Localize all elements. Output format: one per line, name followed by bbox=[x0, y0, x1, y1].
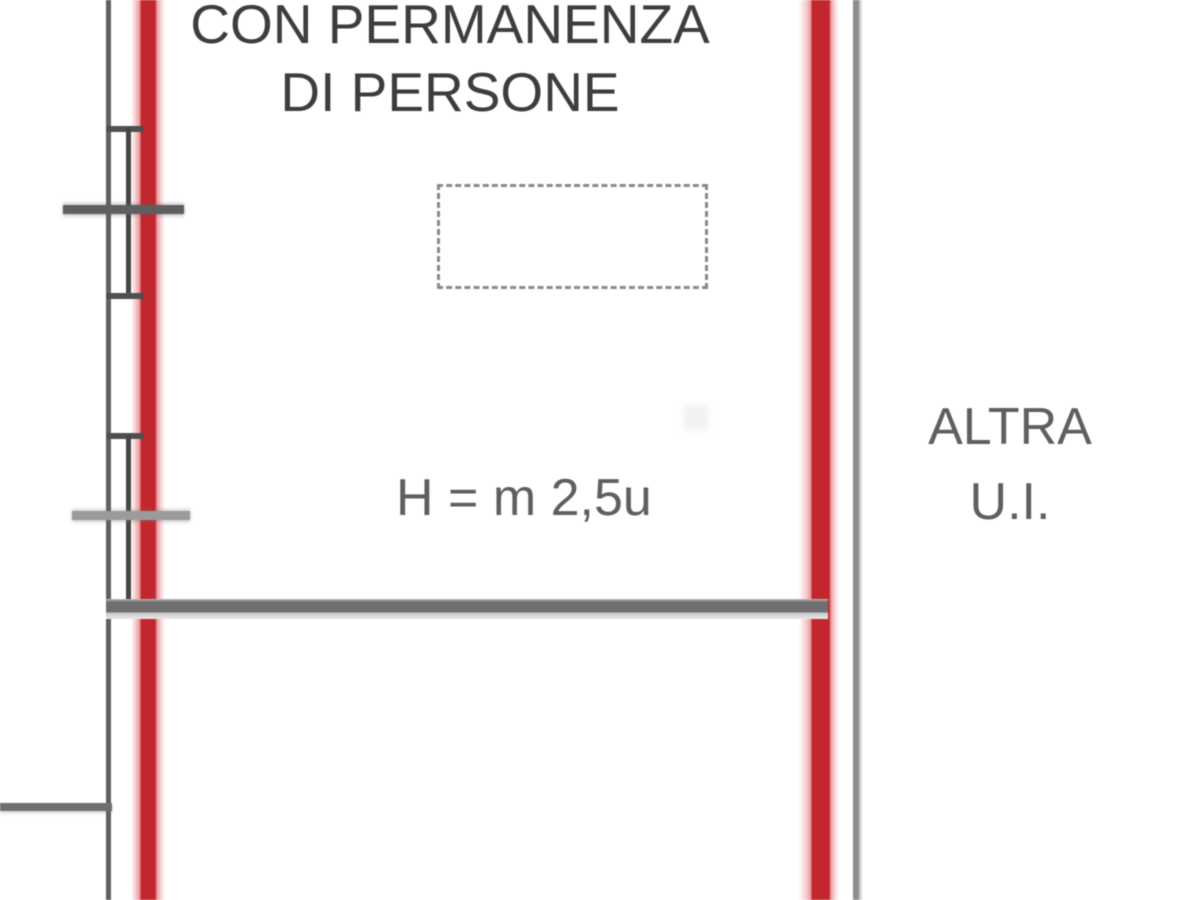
height-annotation: H = m 2,5u bbox=[396, 468, 652, 528]
room-label-line2: DI PERSONE bbox=[170, 58, 730, 126]
floor-plan-drawing: CON PERMANENZA DI PERSONE H = m 2,5u ALT… bbox=[0, 0, 1200, 900]
adjacent-unit-label-line1: ALTRA bbox=[910, 390, 1110, 465]
adjacent-unit-label-line2: U.I. bbox=[910, 465, 1110, 540]
window-1-sill-bottom bbox=[106, 293, 144, 299]
room-label-line1: CON PERMANENZA bbox=[170, 0, 730, 58]
scan-smudge bbox=[683, 405, 709, 431]
lower-slab-tick bbox=[0, 803, 112, 811]
outer-wall-line-left bbox=[106, 0, 111, 900]
floor-slab-line bbox=[106, 599, 828, 619]
window-2-sill-top bbox=[106, 433, 144, 439]
window-2-center-tick bbox=[72, 511, 190, 520]
window-2-glazing-line bbox=[126, 435, 131, 612]
window-1-sill-top bbox=[106, 126, 144, 132]
partition-wall-line-right bbox=[853, 0, 862, 900]
room-label: CON PERMANENZA DI PERSONE bbox=[170, 0, 730, 126]
adjacent-unit-label: ALTRA U.I. bbox=[910, 390, 1110, 540]
unit-boundary-line-left bbox=[131, 0, 165, 900]
unit-boundary-line-right bbox=[799, 0, 839, 900]
window-1-center-tick bbox=[63, 205, 184, 214]
dashed-annotation-box bbox=[437, 184, 708, 289]
